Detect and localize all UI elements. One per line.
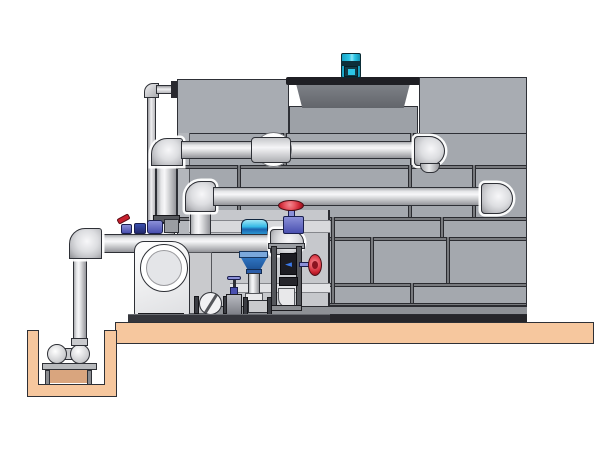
side-valve-hub — [312, 261, 318, 269]
drain-valve-lever-icon — [116, 213, 130, 224]
sump-pump-stand — [42, 363, 97, 370]
sump-riser-elbow — [69, 228, 102, 259]
fan-shroud-rim — [286, 77, 421, 85]
pipe-flange-d — [267, 297, 272, 315]
skid-base — [128, 314, 330, 322]
small-gauge-box — [164, 219, 179, 233]
makeup-pipe-flange — [171, 81, 177, 98]
sump-riser-pipe — [73, 256, 87, 346]
meter-frame-crossbar — [271, 305, 302, 311]
mid-distribution-pipe — [213, 187, 487, 206]
fan-shroud — [294, 85, 412, 108]
flow-meter-display: ◄ — [280, 253, 297, 275]
sump-pump-stand-inner — [50, 370, 87, 383]
strainer-flange — [239, 251, 268, 258]
bottom-gate-valve-body — [226, 294, 242, 315]
mid-pipe-elbow-left — [185, 181, 216, 212]
concrete-slab — [115, 322, 594, 344]
upper-pipe-elbow-right — [414, 136, 445, 166]
sump-pump-stand-leg-left — [45, 370, 50, 385]
upper-pipe-elbow-left — [151, 138, 183, 166]
flow-meter-arrow-icon: ◄ — [285, 260, 292, 270]
sump-riser-reducer — [71, 338, 88, 346]
gate-valve-body — [283, 216, 304, 234]
sump-pump-stand-leg-right — [87, 370, 92, 385]
sump-pump-motor — [47, 344, 67, 364]
scene: ◄ — [0, 0, 600, 450]
small-valve-a — [121, 224, 132, 234]
pipe-coupling-sleeve — [251, 137, 291, 163]
small-valve-c — [147, 220, 163, 234]
upper-distribution-pipe — [181, 141, 416, 159]
pump-suction-eye — [146, 250, 182, 286]
left-downcomer-pipe — [156, 158, 177, 218]
fan-deck — [289, 106, 418, 135]
sump-pump-casing — [70, 344, 90, 364]
tower-top-right-panel — [419, 77, 527, 134]
small-valve-b — [134, 223, 146, 234]
tower-top-left-panel — [177, 79, 289, 135]
check-valve-disc-line — [203, 294, 218, 315]
mid-pipe-elbow-right — [481, 183, 513, 214]
check-valve — [199, 292, 222, 315]
gate-valve-handwheel — [278, 200, 304, 211]
meter-junction-box — [279, 277, 298, 286]
bottom-pipe-spool — [248, 300, 269, 313]
fan-motor-junction-core — [348, 69, 355, 75]
